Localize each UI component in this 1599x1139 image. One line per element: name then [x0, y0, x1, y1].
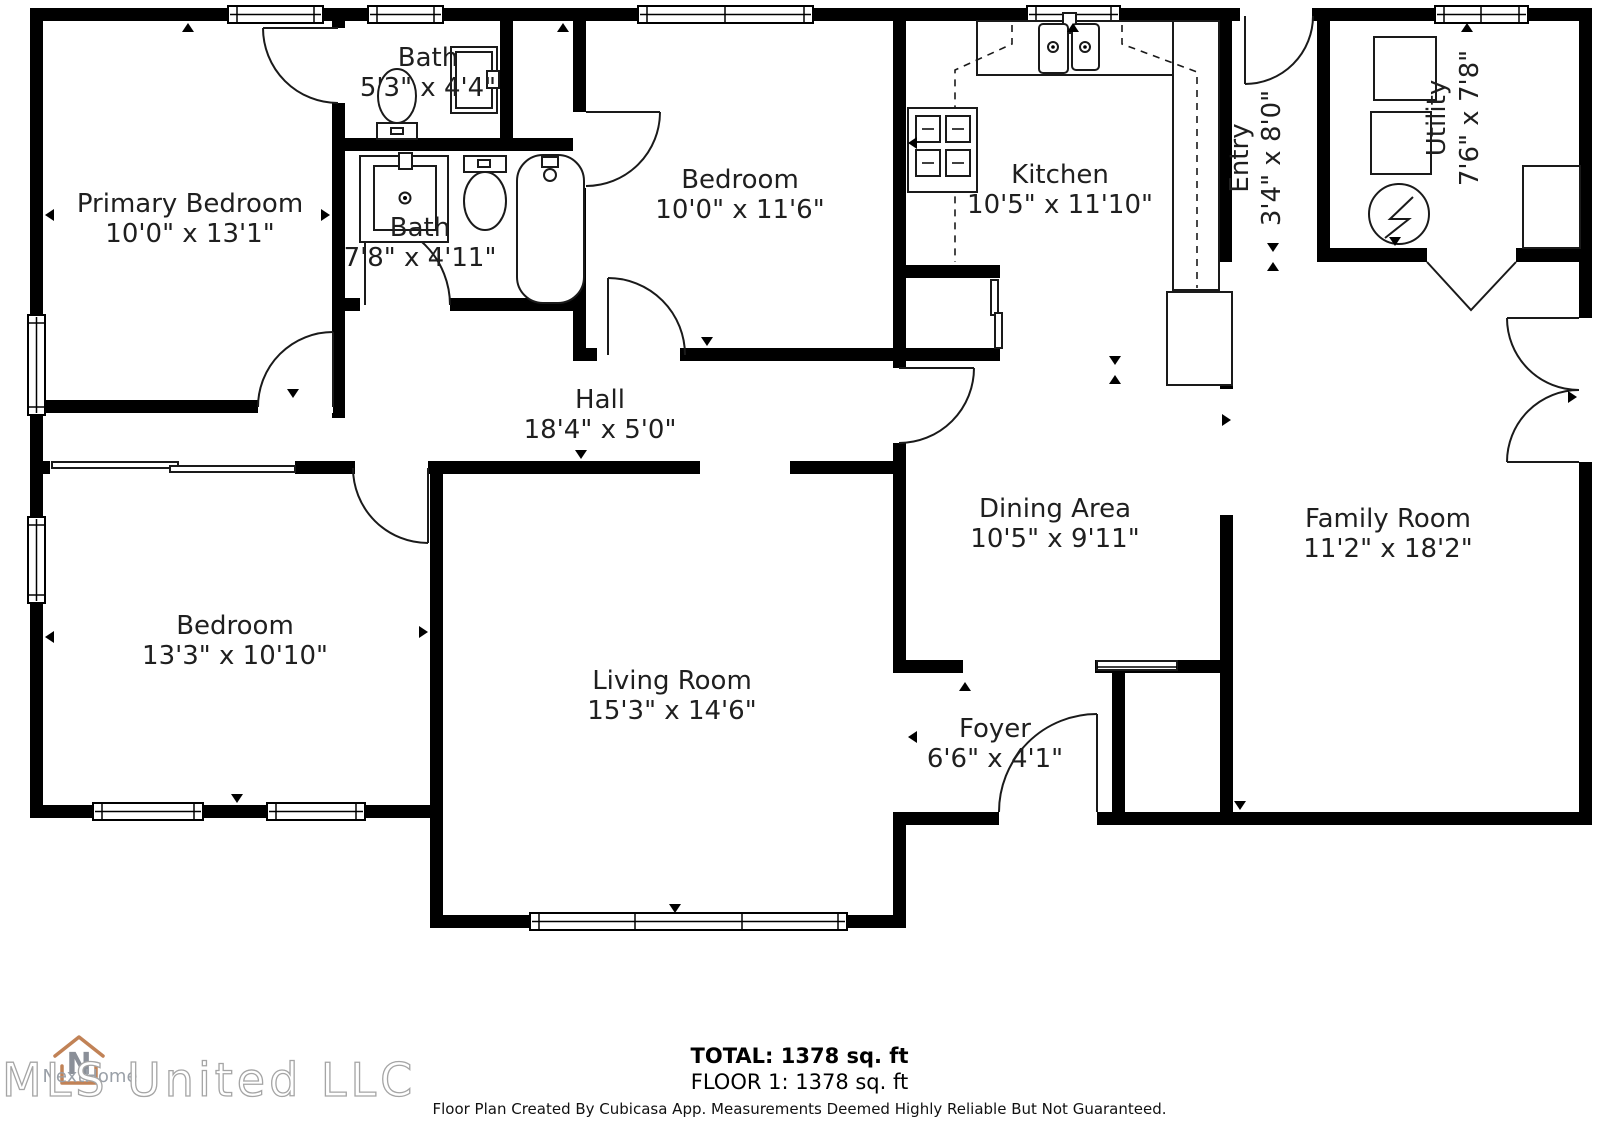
room-label-kitchen: Kitchen — [1011, 160, 1109, 190]
water-heater-icon — [1369, 184, 1429, 244]
window — [638, 6, 813, 23]
room-dims-bedroom-front: 10'0" x 11'6" — [655, 195, 824, 225]
family-room-double-door — [1507, 318, 1579, 462]
room-dims-bath-ensuite: 5'3" x 4'4" — [360, 73, 496, 103]
utility-exterior-door — [1427, 262, 1516, 310]
room-label-bath-ensuite: Bath — [398, 43, 458, 73]
room-label-bedroom-left: Bedroom — [176, 611, 294, 641]
freezer-icon — [1523, 166, 1580, 248]
ensuite-bath-door — [263, 28, 338, 103]
room-label-dining: Dining Area — [979, 494, 1131, 524]
dining-fixtures — [1097, 661, 1177, 670]
room-label-bedroom-front: Bedroom — [681, 165, 799, 195]
console-table — [1097, 661, 1177, 670]
room-label-living: Living Room — [592, 666, 752, 696]
front-bedroom-door — [608, 278, 685, 355]
window — [267, 803, 365, 820]
floor-plan-page: { "rooms": { "primary": {"name": "Primar… — [0, 0, 1599, 1139]
room-dims-entry: 3'4" x 8'0" — [1257, 90, 1287, 226]
room-dims-bath-hall: 7'8" x 4'11" — [344, 243, 497, 273]
bedroom-closet-door — [586, 112, 660, 186]
room-dims-dining: 10'5" x 9'11" — [970, 524, 1139, 554]
floor-plan: Primary Bedroom 10'0" x 13'1" Bath 5'3" … — [0, 0, 1599, 1139]
room-label-utility: Utility — [1422, 80, 1452, 156]
room-label-primary: Primary Bedroom — [77, 189, 303, 219]
left-bedroom-door — [353, 468, 428, 543]
room-label-family: Family Room — [1305, 504, 1471, 534]
window — [228, 6, 323, 23]
room-dims-kitchen: 10'5" x 11'10" — [967, 190, 1153, 220]
window — [93, 803, 203, 820]
room-dims-utility: 7'6" x 7'8" — [1455, 50, 1485, 186]
window — [1435, 6, 1528, 23]
room-dims-living: 15'3" x 14'6" — [587, 696, 756, 726]
window — [368, 6, 443, 23]
bathtub-icon — [517, 155, 584, 303]
room-dims-bedroom-left: 13'3" x 10'10" — [142, 641, 328, 671]
room-dims-foyer: 6'6" x 4'1" — [927, 744, 1063, 774]
room-label-bath-hall: Bath — [390, 213, 450, 243]
total-area-text: TOTAL: 1378 sq. ft — [0, 1044, 1599, 1068]
room-dims-hall: 18'4" x 5'0" — [524, 415, 677, 445]
entry-door — [1245, 16, 1313, 84]
area-summary: TOTAL: 1378 sq. ft FLOOR 1: 1378 sq. ft — [0, 1044, 1599, 1094]
counter — [1173, 21, 1219, 290]
window — [28, 315, 45, 415]
room-label-foyer: Foyer — [959, 714, 1031, 744]
floor-area-text: FLOOR 1: 1378 sq. ft — [0, 1070, 1599, 1094]
room-dims-family: 11'2" x 18'2" — [1303, 534, 1472, 564]
disclaimer-text: Floor Plan Created By Cubicasa App. Meas… — [0, 1100, 1599, 1118]
stove-icon — [908, 108, 977, 192]
wall-openings — [50, 8, 1592, 825]
pantry-sliding-doors — [991, 280, 1002, 348]
window — [28, 517, 45, 603]
window — [530, 913, 847, 930]
primary-bedroom-door — [258, 332, 333, 407]
room-dims-primary: 10'0" x 13'1" — [105, 219, 274, 249]
refrigerator-icon — [1167, 292, 1232, 385]
room-label-hall: Hall — [575, 385, 625, 415]
doors — [52, 16, 1579, 812]
dining-door — [899, 368, 974, 443]
room-label-entry: Entry — [1225, 123, 1255, 192]
toilet-icon — [464, 156, 506, 230]
